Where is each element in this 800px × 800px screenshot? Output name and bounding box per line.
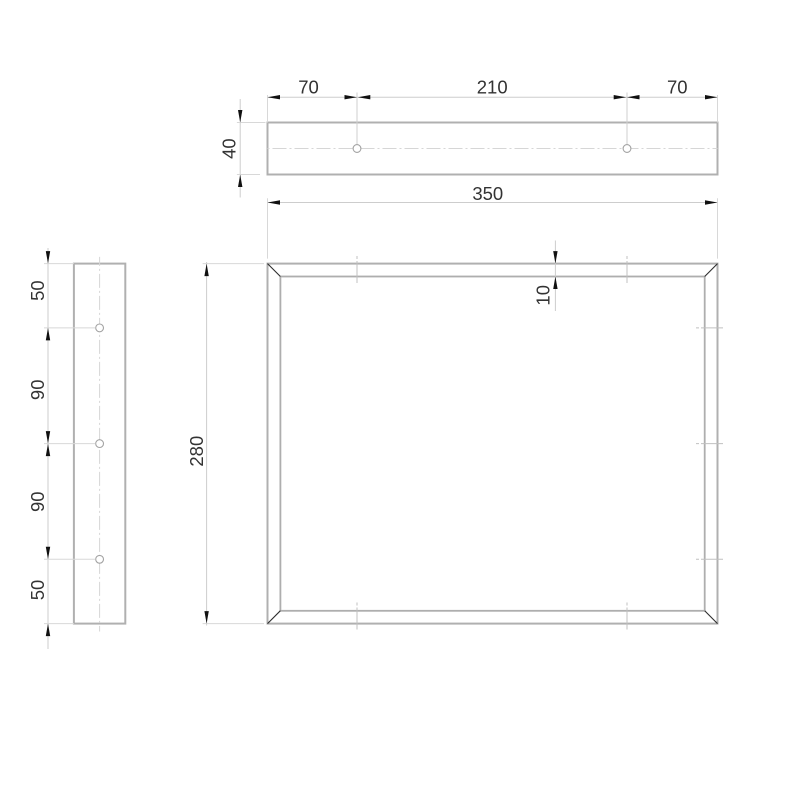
svg-text:50: 50 [27, 280, 48, 301]
svg-text:210: 210 [477, 77, 508, 98]
svg-text:70: 70 [667, 77, 688, 98]
svg-text:70: 70 [298, 77, 319, 98]
svg-text:40: 40 [219, 138, 240, 159]
svg-text:280: 280 [186, 436, 207, 467]
svg-text:10: 10 [533, 285, 554, 306]
svg-text:90: 90 [27, 491, 48, 512]
svg-text:50: 50 [27, 580, 48, 601]
svg-text:350: 350 [472, 183, 503, 204]
svg-text:90: 90 [27, 380, 48, 401]
